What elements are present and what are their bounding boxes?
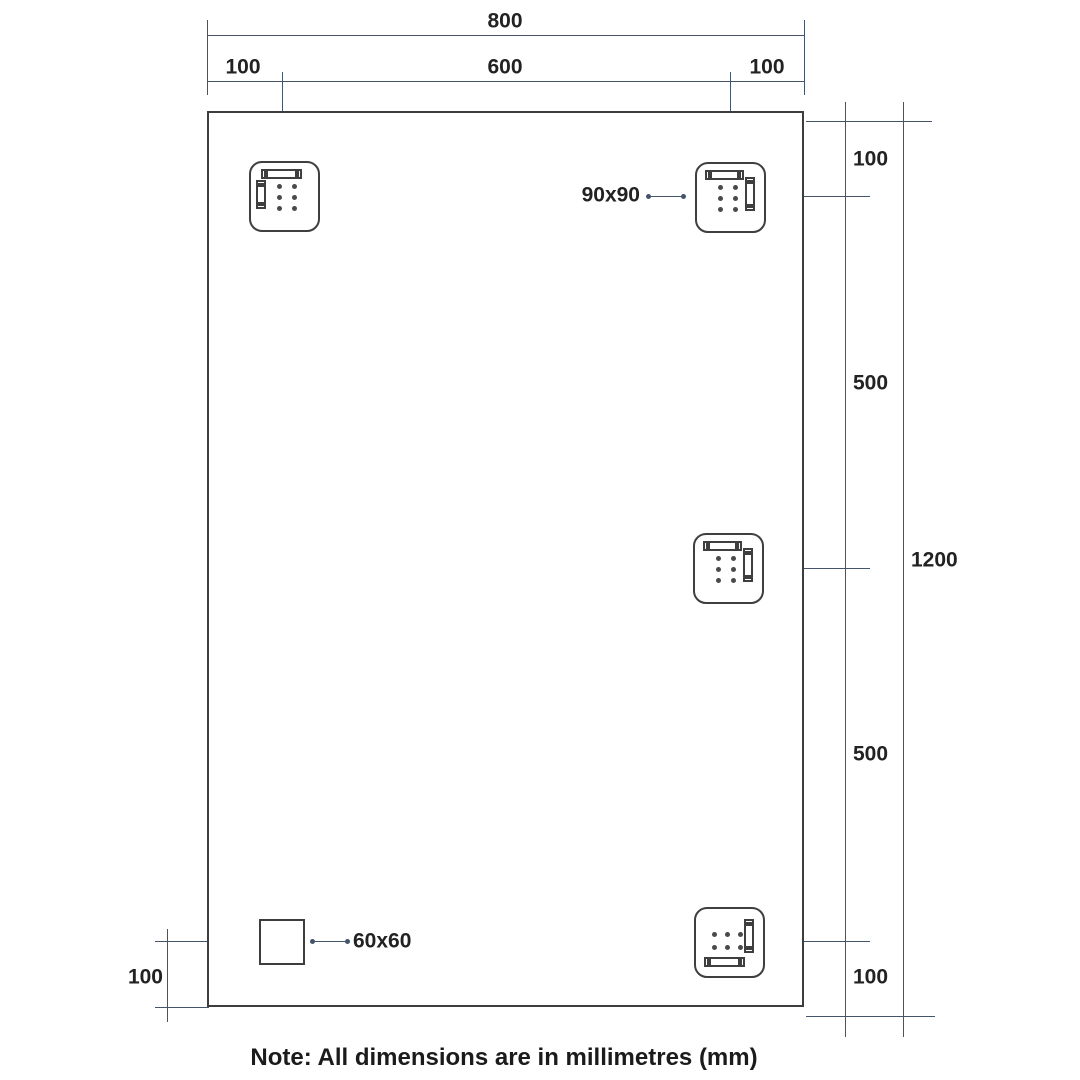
bracket-screw-holes	[277, 184, 297, 211]
bracket-middle-right	[693, 533, 764, 604]
bracket-bottom-right	[694, 907, 765, 978]
leader-60x60-start-dot	[310, 939, 315, 944]
dim-right-total-label: 1200	[911, 550, 958, 571]
dim-right-top-label: 100	[853, 149, 888, 170]
note-text: Note: All dimensions are in millimetres …	[250, 1044, 757, 1072]
dim-right-total-line	[903, 102, 904, 1037]
block-60x60-outline	[259, 919, 305, 965]
bracket-slot-vertical	[743, 548, 753, 582]
leader-90x90-end-dot	[681, 194, 686, 199]
dim-right-segments-line	[845, 102, 846, 1037]
extension-line-panel-bottom	[806, 1016, 935, 1017]
bracket-slot-horizontal	[703, 541, 742, 551]
dim-top-right-label: 100	[749, 57, 784, 78]
bracket-slot-horizontal	[704, 957, 745, 967]
bracket-slot-vertical	[745, 177, 755, 211]
leader-90x90	[649, 196, 684, 197]
dim-top-total-label: 800	[487, 11, 522, 32]
dim-right-lower-label: 500	[853, 744, 888, 765]
bracket-slot-vertical	[744, 919, 754, 953]
bracket-slot-horizontal	[705, 170, 744, 180]
bracket-top-right	[695, 162, 766, 233]
dimension-drawing: 800 100 600 100 100 500 1200 500 100 100	[0, 0, 1080, 1080]
bracket-slot-vertical	[256, 180, 266, 209]
extension-line-top-left	[207, 20, 208, 95]
dim-top-total-line	[207, 35, 804, 36]
bracket-screw-holes	[712, 932, 743, 950]
block-size-label: 60x60	[353, 931, 411, 952]
dim-bottom-left-label: 100	[128, 967, 163, 988]
dim-right-upper-label: 500	[853, 373, 888, 394]
extension-line-panel-top	[806, 121, 932, 122]
bracket-screw-holes	[716, 556, 736, 583]
bracket-size-label: 90x90	[582, 185, 640, 206]
extension-line-top-right	[804, 20, 805, 95]
dim-top-segments-line	[207, 81, 804, 82]
dim-right-bottom-label: 100	[853, 967, 888, 988]
leader-90x90-start-dot	[646, 194, 651, 199]
bracket-screw-holes	[718, 185, 738, 212]
dim-bottom-left-line	[167, 929, 168, 1022]
leader-60x60-end-dot	[345, 939, 350, 944]
dim-top-middle-label: 600	[487, 57, 522, 78]
bracket-slot-horizontal	[261, 169, 302, 179]
extension-line-panel-bottom-left	[155, 1007, 209, 1008]
bracket-top-left	[249, 161, 320, 232]
dim-top-left-label: 100	[225, 57, 260, 78]
leader-60x60	[313, 941, 348, 942]
